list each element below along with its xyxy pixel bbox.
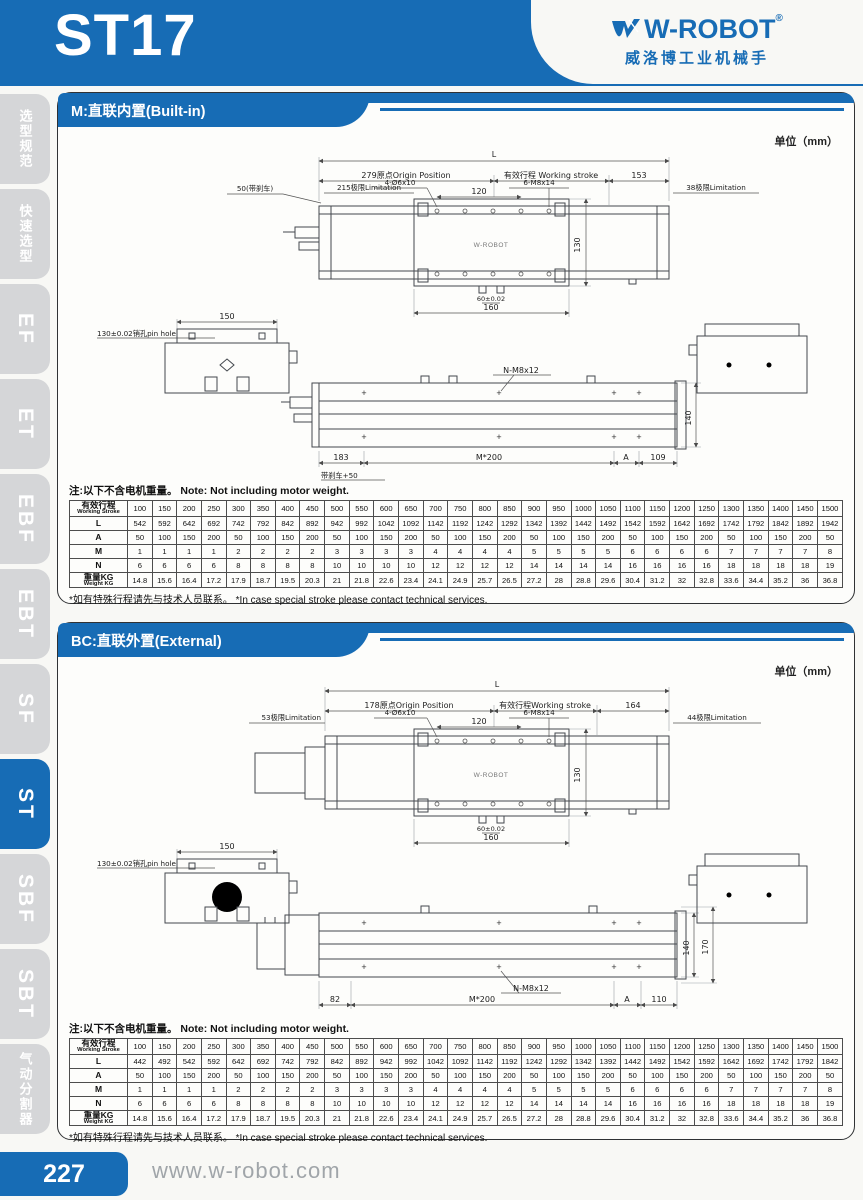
sidebar-item-label: EBF [13,494,37,545]
cell-value: 6 [694,544,719,558]
cell-value: 1 [201,544,226,558]
sidebar-item-ST[interactable]: ST [0,759,50,849]
cell-value: 1342 [571,1054,596,1068]
cell-value: 17.9 [226,572,251,588]
cell-value: 200 [201,530,226,544]
cell-value: 14 [522,1096,547,1110]
cell-value: 200 [694,530,719,544]
cell-value: 900 [522,1039,547,1055]
cell-value: 27.2 [522,1110,547,1126]
section-builtin-header: M:直联内置(Built-in) [58,93,854,129]
cell-value: 12 [448,558,473,572]
cell-value: 150 [152,1039,177,1055]
cell-value: 6 [201,558,226,572]
sidebar-item-EBT[interactable]: EBT [0,569,50,659]
cell-value: 1592 [645,516,670,530]
cell-value: 1742 [719,516,744,530]
dim-overall-length: L [492,150,497,159]
cell-value: 18 [768,558,793,572]
cell-value: 650 [399,1039,424,1055]
cell-value: 50 [226,1068,251,1082]
cell-value: 150 [374,530,399,544]
cell-value: 17.2 [201,572,226,588]
cell-value: 16 [645,1096,670,1110]
row-header: N [70,558,128,572]
sidebar-item-label: ET [13,408,37,441]
cell-value: 6 [694,1082,719,1096]
table-row: M11112222333344445555666677778 [70,1082,843,1096]
table-row: 重量KGWeight KG14.815.616.417.217.918.719.… [70,1110,843,1126]
cell-value: 23.4 [399,572,424,588]
cell-value: 5 [546,1082,571,1096]
cell-value: 10 [349,558,374,572]
cell-value: 500 [325,1039,350,1055]
cell-value: 18 [768,1096,793,1110]
section-external-header: BC:直联外置(External) [58,623,854,659]
side-view [257,906,686,979]
cell-value: 1350 [744,501,769,517]
cell-value: 850 [497,1039,522,1055]
row-header: A [70,530,128,544]
cell-value: 32.8 [694,1110,719,1126]
cell-value: 542 [128,516,153,530]
cell-value: 300 [226,1039,251,1055]
cell-value: 10 [325,558,350,572]
brand-tagline: 威洛博工业机械手 [625,47,769,68]
cell-value: 592 [152,516,177,530]
cell-value: 6 [128,1096,153,1110]
cell-value: 10 [399,558,424,572]
cell-value: 2 [226,544,251,558]
svg-text:+: + [496,388,501,398]
svg-text:+: + [361,432,366,442]
end-view-right [689,854,807,923]
cell-value: 4 [448,1082,473,1096]
cell-value: 742 [275,1054,300,1068]
cell-value: 4 [497,544,522,558]
cell-value: 1250 [694,1039,719,1055]
cell-value: 1342 [522,516,547,530]
cell-value: 7 [744,544,769,558]
sidebar-item-label: 选型规范 [16,109,35,169]
cell-value: 30.4 [620,572,645,588]
cell-value: 18 [793,1096,818,1110]
cell-value: 16.4 [177,1110,202,1126]
table-row: 有效行程Working Stroke1001502002503003504004… [70,501,843,517]
svg-text:+: + [361,388,366,398]
cell-value: 100 [645,1068,670,1082]
cell-value: 2 [300,1082,325,1096]
cell-value: 1 [152,1082,177,1096]
cell-value: 10 [399,1096,424,1110]
cell-value: 26.5 [497,1110,522,1126]
cell-value: 1792 [744,516,769,530]
cell-value: 36.8 [817,572,842,588]
cell-value: 750 [448,1039,473,1055]
brand-name: W-ROBOT [644,16,775,43]
cell-value: 25.7 [472,1110,497,1126]
cell-value: 2 [275,1082,300,1096]
cell-value: 200 [399,1068,424,1082]
row-header: M [70,1082,128,1096]
cell-value: 1242 [472,516,497,530]
dim-limit-right: 38极限Limitation [686,183,746,192]
cell-value: 1842 [817,1054,842,1068]
builtin-technical-drawing: W-ROBOT [69,131,843,483]
cell-value: 1000 [571,501,596,517]
cell-value: 16 [694,558,719,572]
cell-value: 700 [423,501,448,517]
cell-value: 50 [719,1068,744,1082]
cell-value: 150 [571,530,596,544]
cell-value: 18 [719,1096,744,1110]
row-header-sub: Weight KG [70,582,127,588]
cell-value: 50 [817,1068,842,1082]
cell-value: 5 [571,1082,596,1096]
cell-value: 50 [128,1068,153,1082]
dim-holes: 4-Ø6x10 [385,178,416,187]
sidebar-item-快速选型[interactable]: 快速选型 [0,189,50,279]
cell-value: 5 [522,544,547,558]
cell-value: 10 [349,1096,374,1110]
cell-value: 1292 [546,1054,571,1068]
brand-logo: W-ROBOT ® [611,16,783,43]
sidebar-item-气动分割器[interactable]: 气动分割器 [0,1044,50,1134]
cell-value: 100 [448,1068,473,1082]
cell-value: 7 [744,1082,769,1096]
cell-value: 1642 [719,1054,744,1068]
dim-right-segment: 153 [631,171,646,180]
cell-value: 33.6 [719,572,744,588]
w-robot-logo-icon [611,18,641,42]
cell-value: 32 [670,572,695,588]
cell-value: 442 [128,1054,153,1068]
svg-text:+: + [496,432,501,442]
cell-value: 50 [128,530,153,544]
cell-value: 150 [768,1068,793,1082]
row-header: L [70,1054,128,1068]
section-title: BC:直联外置(External) [71,630,222,651]
cell-value: 50 [522,530,547,544]
dim-pitch-run: M*200 [469,995,495,1004]
dim-pin-hole: 130±0.02销孔pin hole [97,859,176,868]
svg-text:+: + [361,962,366,972]
cell-value: 842 [275,516,300,530]
cell-value: 1150 [645,501,670,517]
table-row: 有效行程Working Stroke1001502002503003504004… [70,1039,843,1055]
sidebar-item-label: SBF [13,874,37,925]
svg-text:+: + [496,962,501,972]
cell-value: 592 [201,1054,226,1068]
cell-value: 22.6 [374,572,399,588]
cell-value: 14 [522,558,547,572]
cell-value: 14.8 [128,572,153,588]
cell-value: 16 [670,558,695,572]
cell-value: 4 [448,544,473,558]
dim-pitch-120: 120 [471,717,486,726]
end-view-left [165,859,297,923]
cell-value: 50 [226,530,251,544]
cell-value: 150 [571,1068,596,1082]
dim-pin-offset: 60±0.02 [477,825,505,833]
dim-pin-hole: 130±0.02销孔pin hole [97,329,176,338]
cell-value: 1450 [793,501,818,517]
cell-value: 50 [423,1068,448,1082]
cell-value: 1050 [596,1039,621,1055]
cell-value: 5 [596,1082,621,1096]
cell-value: 100 [546,1068,571,1082]
cell-value: 24.9 [448,1110,473,1126]
cell-value: 29.6 [596,572,621,588]
cell-value: 100 [251,530,276,544]
cell-value: 642 [177,516,202,530]
note-motor-weight: 注:以下不含电机重量。 Note: Not including motor we… [69,483,843,498]
cell-value: 19.5 [275,572,300,588]
section-title-chip: BC:直联外置(External) [58,623,370,657]
header-pinstripe [380,638,844,641]
cell-value: 8 [300,1096,325,1110]
cell-value: 3 [399,1082,424,1096]
row-header-sub: Weight KG [70,1120,127,1126]
cell-value: 3 [325,1082,350,1096]
cell-value: 1692 [694,516,719,530]
cell-value: 50 [325,1068,350,1082]
sidebar-item-EF[interactable]: EF [0,284,50,374]
cell-value: 5 [571,544,596,558]
sidebar-item-SBT[interactable]: SBT [0,949,50,1039]
cell-value: 1892 [793,516,818,530]
cell-value: 1 [128,1082,153,1096]
cell-value: 450 [300,1039,325,1055]
note-motor-weight: 注:以下不含电机重量。 Note: Not including motor we… [69,1021,843,1036]
cell-value: 892 [300,516,325,530]
cell-value: 18.7 [251,572,276,588]
cell-value: 1542 [670,1054,695,1068]
cell-value: 1192 [497,1054,522,1068]
cell-value: 17.9 [226,1110,251,1126]
dim-right-end: 109 [650,453,665,462]
dim-pin-offset: 60±0.02 [477,295,505,303]
svg-text:+: + [611,962,616,972]
cell-value: 6 [177,558,202,572]
cell-value: 18 [719,558,744,572]
cell-value: 200 [497,530,522,544]
cell-value: 7 [793,544,818,558]
cell-value: 7 [768,1082,793,1096]
sidebar-item-SBF[interactable]: SBF [0,854,50,944]
cell-value: 3 [325,544,350,558]
cell-value: 24.1 [423,572,448,588]
cell-value: 1200 [670,1039,695,1055]
dim-carriage-width: 130 [573,767,582,782]
cell-value: 892 [349,1054,374,1068]
cell-value: 600 [374,1039,399,1055]
sidebar-item-label: EBT [13,589,37,640]
unit-label: 单位（mm） [774,133,838,149]
cell-value: 250 [201,501,226,517]
cell-value: 16 [670,1096,695,1110]
cell-value: 1400 [768,501,793,517]
cell-value: 36.8 [817,1110,842,1126]
cell-value: 1742 [768,1054,793,1068]
cell-value: 792 [300,1054,325,1068]
cell-value: 50 [423,530,448,544]
cell-value: 18 [744,558,769,572]
cell-value: 14 [596,1096,621,1110]
cell-value: 842 [325,1054,350,1068]
cell-value: 1500 [817,1039,842,1055]
cell-value: 100 [251,1068,276,1082]
table-row: N666688881010101012121212141414141616161… [70,558,843,572]
cell-value: 22.6 [374,1110,399,1126]
table-row: N666688881010101012121212141414141616161… [70,1096,843,1110]
cell-value: 1792 [793,1054,818,1068]
cell-value: 500 [325,501,350,517]
cell-value: 642 [226,1054,251,1068]
website-link[interactable]: www.w-robot.com [152,1158,341,1184]
dim-height-170: 170 [701,939,710,954]
row-header: N [70,1096,128,1110]
cell-value: 1450 [793,1039,818,1055]
cell-value: 7 [793,1082,818,1096]
cell-value: 550 [349,1039,374,1055]
cell-value: 12 [472,1096,497,1110]
cell-value: 8 [817,544,842,558]
cell-value: 12 [448,1096,473,1110]
cell-value: 900 [522,501,547,517]
sidebar: 选型规范快速选型EFETEBFEBTSFSTSBFSBT气动分割器 [0,94,50,1139]
cell-value: 36 [793,572,818,588]
cell-value: 1642 [670,516,695,530]
cell-value: 2 [300,544,325,558]
cell-value: 14 [546,1096,571,1110]
cell-value: 792 [251,516,276,530]
cell-value: 200 [596,530,621,544]
cell-value: 200 [694,1068,719,1082]
cell-value: 19.5 [275,1110,300,1126]
carriage-logo: W-ROBOT [474,242,509,249]
cell-value: 23.4 [399,1110,424,1126]
cell-value: 31.2 [645,572,670,588]
sidebar-item-ET[interactable]: ET [0,379,50,469]
carriage-logo: W-ROBOT [474,772,509,779]
cell-value: 8 [251,1096,276,1110]
table-row: A501001502005010015020050100150200501001… [70,1068,843,1082]
cell-value: 100 [744,530,769,544]
page-number: 227 [43,1160,85,1189]
end-view-right [689,324,807,393]
cell-value: 8 [226,558,251,572]
section-external-body: W-ROBOT [58,659,854,1144]
cell-value: 4 [423,544,448,558]
cell-value: 16 [694,1096,719,1110]
cell-value: 24.1 [423,1110,448,1126]
cell-value: 19 [817,1096,842,1110]
cell-value: 50 [325,530,350,544]
dim-overall-length: L [495,680,500,689]
dim-pitch-120: 120 [471,187,486,196]
table-row: M11112222333344445555666677778 [70,544,843,558]
cell-value: 200 [596,1068,621,1082]
cell-value: 16 [645,558,670,572]
cell-value: 18 [793,558,818,572]
cell-value: 4 [423,1082,448,1096]
row-header-sub: Working Stroke [70,510,127,516]
cell-value: 992 [399,1054,424,1068]
cell-value: 1150 [645,1039,670,1055]
cell-value: 10 [374,558,399,572]
sidebar-item-EBF[interactable]: EBF [0,474,50,564]
cell-value: 1 [128,544,153,558]
cell-value: 942 [325,516,350,530]
cell-value: 12 [497,1096,522,1110]
sidebar-item-SF[interactable]: SF [0,664,50,754]
cell-value: 20.3 [300,572,325,588]
dim-a: A [624,995,630,1004]
dim-carriage-width: 130 [573,237,582,252]
dim-left-end: 183 [333,453,348,462]
cell-value: 50 [522,1068,547,1082]
cell-value: 1142 [472,1054,497,1068]
cell-value: 650 [399,501,424,517]
cell-value: 34.4 [744,1110,769,1126]
sidebar-item-label: EF [13,313,37,346]
cell-value: 100 [152,1068,177,1082]
cell-value: 14.8 [128,1110,153,1126]
cell-value: 30.4 [620,1110,645,1126]
cell-value: 35.2 [768,1110,793,1126]
row-header: 重量KGWeight KG [70,572,128,588]
cell-value: 3 [349,1082,374,1096]
cell-value: 8 [275,558,300,572]
cell-value: 21.8 [349,1110,374,1126]
cell-value: 2 [226,1082,251,1096]
cell-value: 100 [645,530,670,544]
cell-value: 4 [472,1082,497,1096]
page-header: ST17 W-ROBOT ® 威洛博工业机械手 [0,0,863,86]
cell-value: 28.8 [571,572,596,588]
cell-value: 25.7 [472,572,497,588]
cell-value: 50 [620,1068,645,1082]
cell-value: 7 [719,1082,744,1096]
cell-value: 100 [128,1039,153,1055]
cell-value: 300 [226,501,251,517]
cell-value: 2 [251,544,276,558]
cell-value: 28 [546,572,571,588]
cell-value: 50 [719,530,744,544]
dim-pitch-run: M*200 [476,453,502,462]
table-row: L442492542592642692742792842892942992104… [70,1054,843,1068]
cell-value: 4 [472,544,497,558]
cell-value: 850 [497,501,522,517]
cell-value: 3 [374,1082,399,1096]
cell-value: 1492 [645,1054,670,1068]
cell-value: 1300 [719,1039,744,1055]
cell-value: 3 [399,544,424,558]
cell-value: 14 [596,558,621,572]
cell-value: 150 [152,501,177,517]
cell-value: 150 [472,530,497,544]
cell-value: 8 [226,1096,251,1110]
cell-value: 150 [177,530,202,544]
sidebar-item-选型规范[interactable]: 选型规范 [0,94,50,184]
cell-value: 200 [300,530,325,544]
cell-value: 17.2 [201,1110,226,1126]
cell-value: 12 [497,558,522,572]
cell-value: 12 [423,558,448,572]
cell-value: 200 [177,501,202,517]
section-builtin: M:直联内置(Built-in) 单位（mm） [57,92,855,604]
